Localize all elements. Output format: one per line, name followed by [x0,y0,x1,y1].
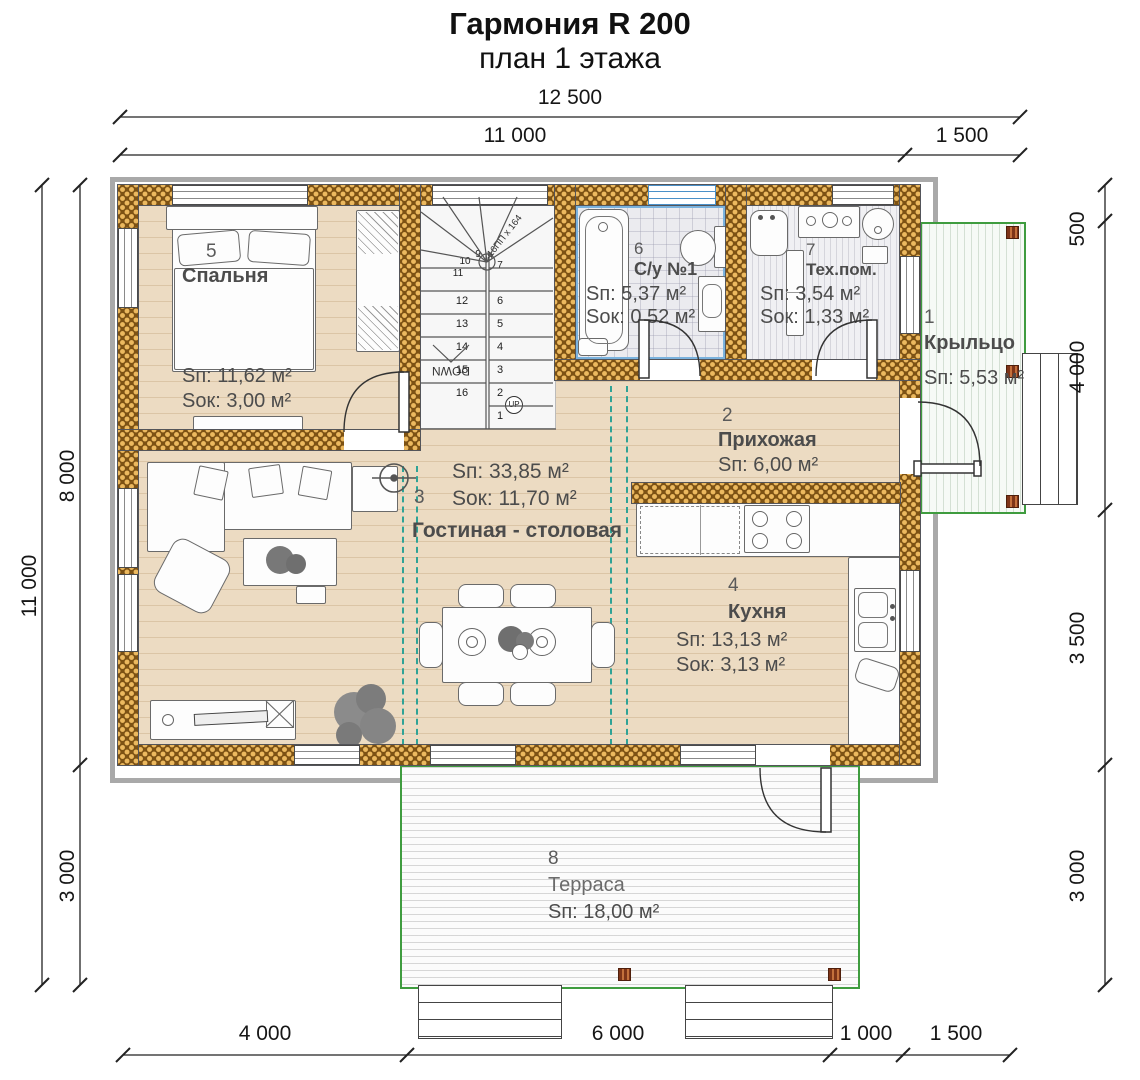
table-plant [286,554,306,574]
stair-step-number: 4 [492,341,508,354]
room-area: Sп: 11,62 м² [182,364,292,389]
stair-up-marker: UP [505,396,523,414]
room-number: 2 [722,404,818,428]
sofa-side-table [352,466,398,512]
stair-step-number: 16 [454,387,470,400]
room-area: Sп: 18,00 м² [548,899,659,926]
media-box [266,700,294,728]
room-name: Спальня [182,264,268,289]
table-decor [512,644,528,660]
window-bedroom-left [118,228,138,308]
room-number-living: 3 [414,486,425,510]
room-area-windows: Sок: 11,70 м² [452,485,577,512]
tech-sink [750,210,788,256]
stair-step-number: 13 [454,318,470,331]
sofa-pillow [248,464,284,498]
room-area-windows: Sок: 0,52 м² [586,306,695,329]
terrace-steps-left [418,985,562,1039]
stair-winder-number: 11 [450,267,466,280]
dining-chair [591,622,615,668]
door-opening-tech [812,360,876,380]
door-opening-terrace [756,745,830,765]
burner [786,533,802,549]
dim-left-upper: 8 000 [56,421,80,531]
door-opening-entrance [900,398,920,474]
bathroom-sink-basin [702,284,722,318]
console-decor [162,714,174,726]
room-name-living: Гостиная - столовая [412,518,622,543]
room-label-hall: 2 Прихожая Sп: 6,00 м² [718,404,818,478]
room-area: Sп: 13,13 м² [676,628,787,653]
stair-step-number: 2 [492,387,508,400]
room-label-terrace: 8 Терраса Sп: 18,00 м² [548,846,659,926]
window-tech-top [832,185,894,205]
dim-left-lower: 3 000 [56,821,80,931]
room-area: Sп: 3,54 м² [760,283,869,306]
wall-bedroom-stair [400,185,420,450]
wardrobe-shelves [358,212,398,254]
coffee-table-ext [296,586,326,604]
dining-chair [458,682,504,706]
cabinet-divider [700,505,701,555]
room-area: Sп: 5,37 м² [586,283,695,306]
sofa-pillow [193,465,229,501]
burner [752,533,768,549]
dim-right-4000: 4 000 [1066,312,1090,422]
room-area-windows: Sок: 3,00 м² [182,389,292,414]
stair-step-number: 5 [492,318,508,331]
room-name: Прихожая [718,428,818,453]
wardrobe-shelves [358,306,398,350]
window-living-left-1 [118,488,138,568]
plan-title: Гармония R 200 [0,6,1140,42]
stair-step-number: 14 [454,341,470,354]
dim-bottom-6000: 6 000 [553,1022,683,1046]
room-areas-bathroom: Sп: 5,37 м² Sок: 0,52 м² [586,283,695,329]
faucet-dot [758,215,763,220]
dim-top-right: 1 500 [897,124,1027,148]
wall-hall-kitchen [632,483,900,503]
room-areas-living: Sп: 33,85 м² Sок: 11,70 м² [452,458,577,512]
stair-step-number: 1 [492,410,508,423]
boiler-knob [842,216,852,226]
room-area-windows: Sок: 1,33 м² [760,306,869,329]
window-kitchen-right [900,570,920,652]
stair-step-number: 6 [492,295,508,308]
dim-right-3000: 3 000 [1066,821,1090,931]
faucet-dot [890,604,895,609]
dining-chair [510,584,556,608]
door-opening-bedroom [344,430,404,450]
wall-stair-bathroom [555,185,575,380]
dining-chair [419,622,443,668]
dim-bottom-4000: 4 000 [200,1022,330,1046]
room-label-porch: 1 Крыльцо Sп: 5,53 м² [924,306,1024,391]
stair-step-number: 12 [454,295,470,308]
dim-right-3500: 3 500 [1066,583,1090,693]
stair-floor [420,205,556,429]
room-name: Кухня [728,598,786,626]
dim-right-500: 500 [1066,174,1090,284]
window-bedroom-top [172,185,308,205]
burner [786,511,802,527]
plan-subtitle: план 1 этажа [0,42,1140,76]
porch-post [1006,495,1019,508]
sink-basin [858,622,888,648]
window-terrace-1 [430,745,516,765]
dim-bottom-1500: 1 500 [891,1022,1021,1046]
room-areas-bedroom: Sп: 11,62 м² Sок: 3,00 м² [182,364,292,414]
burner [752,511,768,527]
window-terrace-2 [680,745,756,765]
upper-cabinets [640,506,740,554]
dim-top-left: 11 000 [450,124,580,148]
dining-chair [458,584,504,608]
room-label-tech: 7 Тех.пом. [806,240,877,280]
room-label-bathroom: 6 С/у №1 [634,238,697,280]
door-opening-bathroom [640,360,700,380]
window-stair-top [432,185,548,205]
room-number: 5 [206,240,268,264]
stair-down-marker: DOWN [424,362,478,378]
dim-left-total: 11 000 [18,531,42,641]
room-area: Sп: 5,53 м² [924,366,1024,391]
wall-bathroom-tech [726,185,746,380]
room-areas-kitchen: Sп: 13,13 м² Sок: 3,13 м² [676,628,787,678]
sink-basin [858,592,888,618]
dining-chair [510,682,556,706]
window-bathroom-top [648,185,716,205]
zone-line [402,466,404,745]
plate-center [466,636,478,648]
faucet-dot [770,215,775,220]
floor-plant [360,708,396,744]
room-name: С/у №1 [634,259,697,280]
room-number: 7 [806,240,877,260]
bathtub-drain [598,222,608,232]
water-heater [862,208,894,240]
zone-line [610,386,612,745]
room-name: Крыльцо [924,330,1024,356]
terrace-post [618,968,631,981]
room-name: Терраса [548,872,659,899]
room-number: 4 [728,574,786,598]
sofa-pillow [298,466,333,501]
terrace-post [828,968,841,981]
kitchen-counter-right [848,557,902,747]
stair-step-number: 3 [492,364,508,377]
room-number: 6 [634,238,697,259]
window-tech-right [900,256,920,334]
dim-top-total: 12 500 [505,86,635,110]
room-label-kitchen: 4 Кухня [728,574,786,626]
zone-line [626,386,628,745]
room-number: 1 [924,306,1024,330]
room-name: Тех.пом. [806,260,877,280]
room-area: Sп: 6,00 м² [718,453,818,478]
bed-headboard [166,206,318,230]
water-heater-valve [874,226,882,234]
porch-post [1006,226,1019,239]
window-living-bottom [294,745,360,765]
boiler-knob [822,212,838,228]
plate-center [536,636,548,648]
boiler-knob [806,216,816,226]
room-number: 8 [548,846,659,872]
room-areas-tech: Sп: 3,54 м² Sок: 1,33 м² [760,283,869,329]
faucet-dot [890,616,895,621]
room-area-windows: Sок: 3,13 м² [676,653,787,678]
room-label-bedroom: 5 Спальня [182,240,268,289]
room-area: Sп: 33,85 м² [452,458,577,485]
window-living-left-2 [118,574,138,652]
